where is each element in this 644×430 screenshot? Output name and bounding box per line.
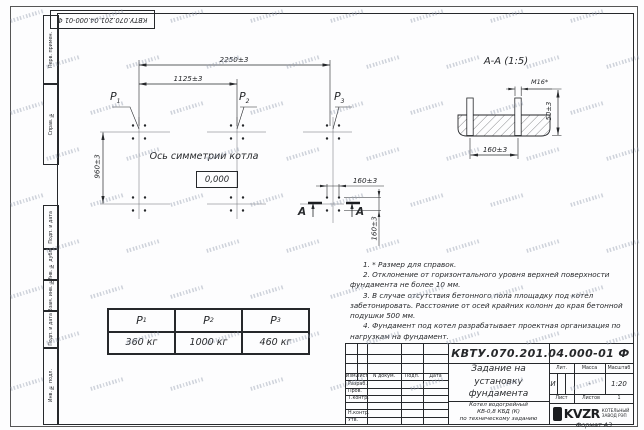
dim-bolt-thread: М16*: [531, 78, 559, 86]
col-data: Дата: [423, 373, 448, 380]
load-label-p3: P3: [334, 90, 344, 105]
mass-value: -: [574, 373, 605, 394]
load-value-p2: 1000 кг: [175, 332, 242, 355]
sheet-label: Лист: [549, 394, 574, 403]
dim-bolt-spacing-y: 160±3: [370, 210, 379, 248]
load-value-p1: 360 кг: [108, 332, 175, 355]
section-letter-right: А: [356, 206, 364, 218]
col-podp: Подп.: [401, 373, 423, 380]
title-block-doc-number: КВТУ.070.201.04.000-01 Ф: [448, 344, 633, 363]
kvzr-logo-subtitle: КОТЕЛЬНЫЙ ЗАВОД РЭП: [602, 409, 629, 419]
load-label-base: P: [203, 314, 210, 327]
format-note: Формат А3: [564, 421, 624, 429]
dim-section-height: 50±3: [545, 96, 553, 126]
job-title-line: фундамента: [469, 388, 529, 400]
kvzr-logo-icon: [553, 407, 562, 421]
logo-subtitle-line: ЗАВОД РЭП: [602, 414, 629, 419]
load-table: P1 P2 P3 360 кг 1000 кг 460 кг: [107, 308, 310, 355]
axis-of-symmetry-label: Ось симметрии котла: [146, 151, 262, 162]
row-nkontr: Н.контр.: [346, 409, 369, 417]
load-label-sub: 2: [210, 316, 214, 324]
section-letter-left: А: [298, 206, 306, 218]
lit-value: И: [549, 373, 557, 394]
job-title-line: установку: [474, 376, 523, 388]
load-label-sub: 1: [143, 316, 147, 324]
load-label-sub: 1: [117, 98, 121, 105]
dim-height: 960±3: [93, 150, 102, 184]
row-blank: [346, 402, 369, 409]
load-label-sub: 3: [341, 98, 345, 105]
title-block: КВТУ.070.201.04.000-01 Ф Задание на уста…: [345, 343, 634, 425]
load-table-header-p3: P3: [242, 309, 309, 332]
note-1: 1. * Размер для справок.: [350, 260, 640, 270]
col-ndokum: N докум.: [367, 373, 401, 380]
load-label-p2: P2: [239, 90, 249, 105]
note-3: 3. В случае отсутствия бетонного пола пл…: [350, 291, 640, 322]
section-view-title: А-А (1:5): [468, 56, 544, 67]
load-table-header-p1: P1: [108, 309, 175, 332]
scale-value: 1:20: [605, 373, 633, 394]
annotation-layer: 2250±3 1125±3 960±3 160±3 160±3 P1 P2 P3…: [0, 0, 644, 430]
kvzr-logo-text: KVZR: [564, 406, 600, 421]
load-label-sub: 2: [246, 98, 250, 105]
drawing-sheet: Перв. примен. Справ. № Подп. и дата Инв.…: [0, 0, 644, 430]
load-label-base: P: [270, 314, 277, 327]
load-label-base: P: [334, 90, 341, 103]
note-2: 2. Отклонение от горизонтального уровня …: [350, 270, 640, 290]
load-label-p1: P1: [110, 90, 120, 105]
scale-label: Масштаб: [605, 363, 633, 373]
note-4: 4. Фундамент под котел разрабатывает про…: [350, 321, 640, 341]
dim-bolt-spacing-x: 160±3: [346, 176, 384, 185]
title-block-job-title: Задание на установку фундамента: [448, 363, 549, 401]
lit-label: Лит.: [549, 363, 574, 373]
load-label-base: P: [136, 314, 143, 327]
load-value-p3: 460 кг: [242, 332, 309, 355]
row-razrab: Разраб.: [346, 380, 369, 388]
notes-block: 1. * Размер для справок. 2. Отклонение о…: [350, 260, 640, 342]
load-table-header-p2: P2: [175, 309, 242, 332]
product-line: по техническому заданию: [460, 416, 538, 423]
row-prov: Пров.: [346, 388, 369, 395]
col-list: Лист: [357, 373, 367, 380]
load-label-base: P: [239, 90, 246, 103]
load-label-base: P: [110, 90, 117, 103]
product-line: КВ-0,8 КБД (К): [477, 409, 520, 416]
job-title-line: Задание на: [471, 363, 526, 375]
load-label-sub: 3: [277, 316, 281, 324]
title-block-product: Котел водогрейный КВ-0,8 КБД (К) по техн…: [448, 401, 549, 424]
dim-half-width: 1125±3: [156, 74, 220, 83]
level-mark: 0,000: [196, 171, 238, 188]
dim-section-spacing: 160±3: [477, 145, 513, 154]
dim-total-width: 2250±3: [200, 55, 268, 64]
mass-label: Масса: [574, 363, 605, 373]
sheets-label: Листов: [576, 394, 606, 403]
row-utv: Утв.: [346, 417, 369, 424]
product-line: Котел водогрейный: [469, 402, 528, 409]
sheets-value: 1: [608, 394, 630, 403]
row-tkontr: Т.контр.: [346, 395, 369, 402]
